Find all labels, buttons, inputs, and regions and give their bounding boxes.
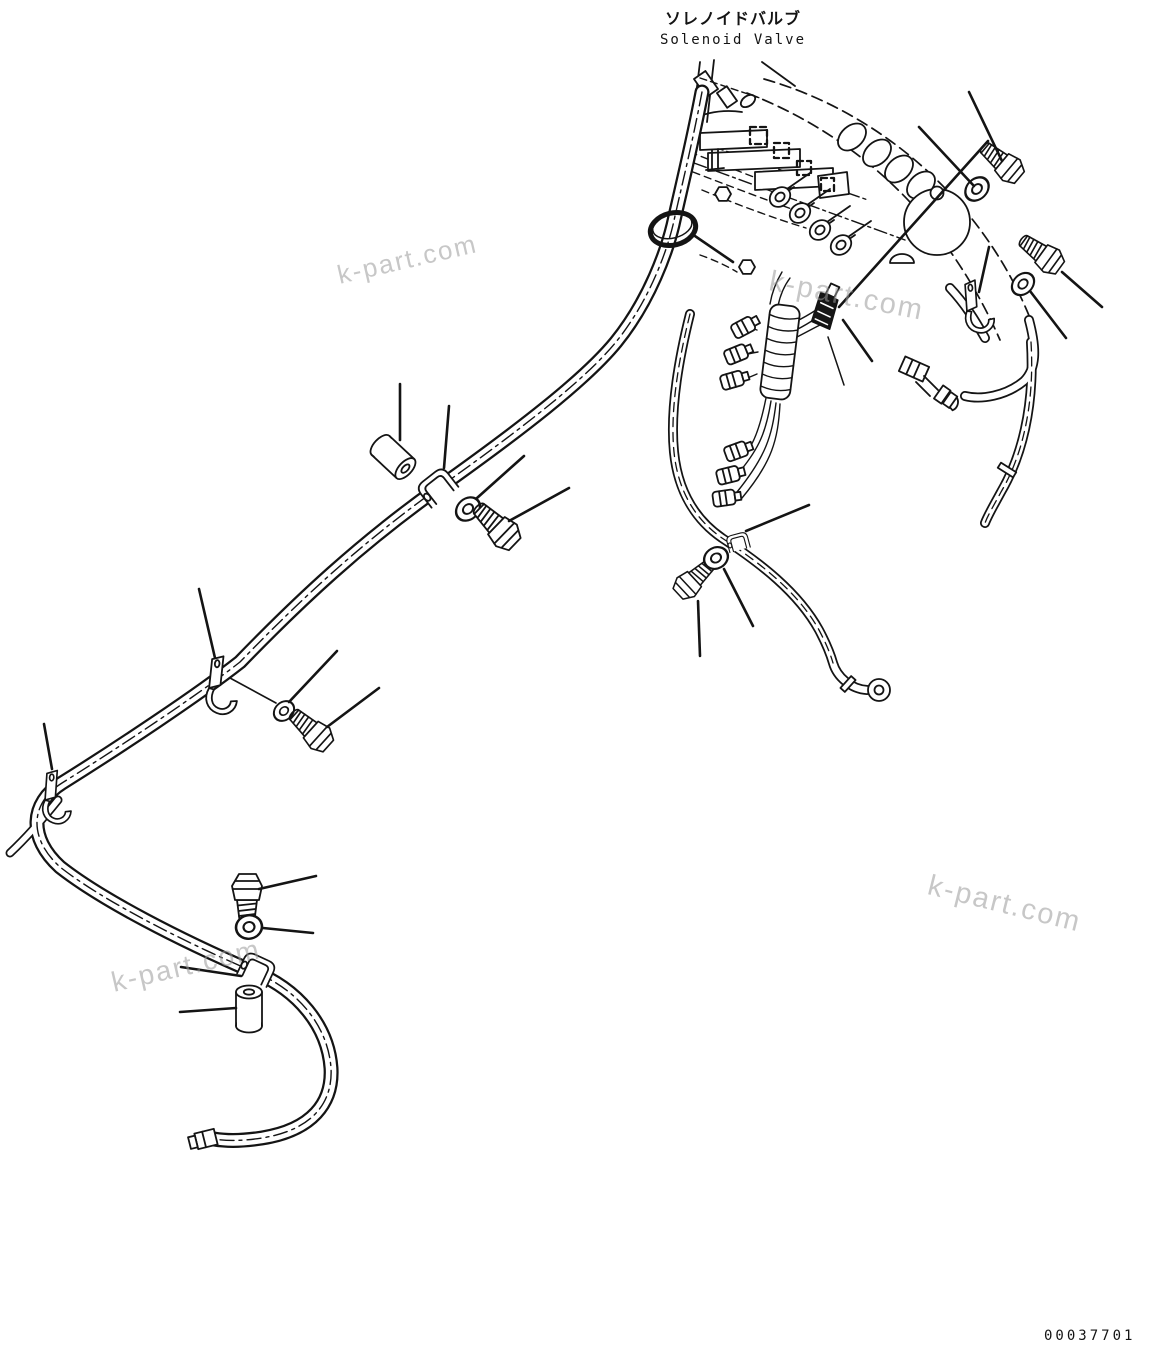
spacer-roller-mid-left [367,431,419,482]
drawing-number: 00037701 [1044,1328,1135,1344]
harness-wrap-bundle [759,304,800,401]
harness-connectors-upper [719,313,761,391]
hose-end-fitting-bottom-left [188,1129,218,1151]
elbow-fitting-right [899,356,962,412]
solenoid-valve-diagram [0,0,1174,1357]
callout-parts [42,136,1068,1033]
harness-connectors-lower [712,438,755,507]
parts-diagram-page: ソレノイドバルブ Solenoid Valve [0,0,1174,1357]
bolt-right [1013,228,1068,278]
bushing-bottom-left [236,986,262,1033]
hoses [10,92,1034,1151]
